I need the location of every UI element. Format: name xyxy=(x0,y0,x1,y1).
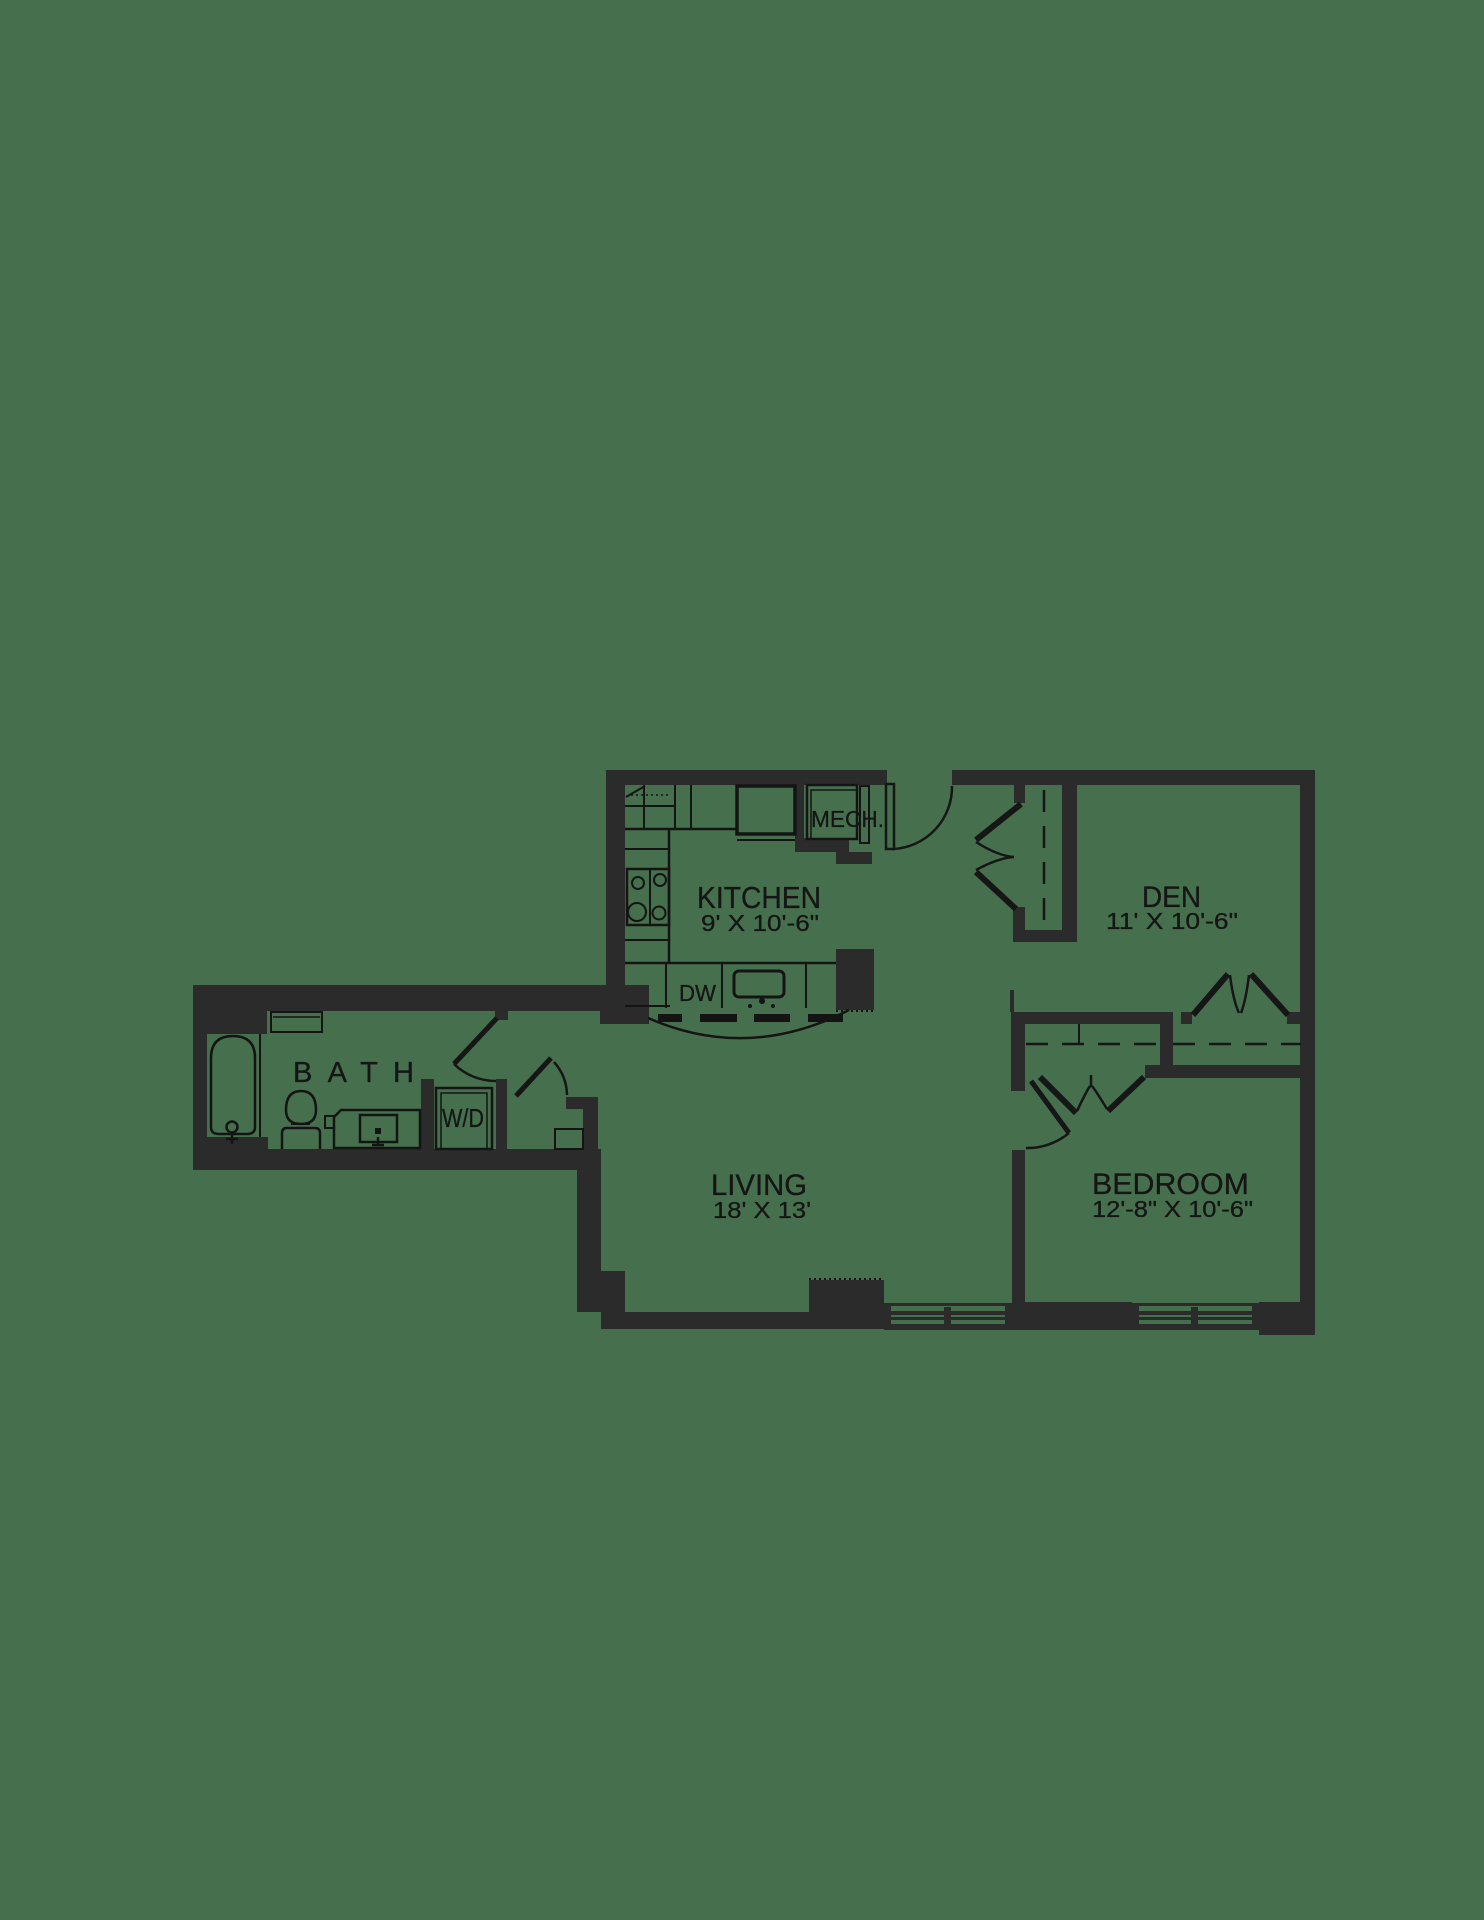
svg-text:W/D: W/D xyxy=(442,1103,484,1133)
svg-text:9' X 10'-6": 9' X 10'-6" xyxy=(701,910,819,936)
svg-text:18' X 13': 18' X 13' xyxy=(713,1197,811,1223)
svg-text:MECH.: MECH. xyxy=(811,806,884,832)
svg-text:11' X 10'-6": 11' X 10'-6" xyxy=(1106,908,1238,934)
svg-text:DW: DW xyxy=(679,980,716,1006)
svg-text:12'-8" X 10'-6": 12'-8" X 10'-6" xyxy=(1092,1196,1253,1222)
